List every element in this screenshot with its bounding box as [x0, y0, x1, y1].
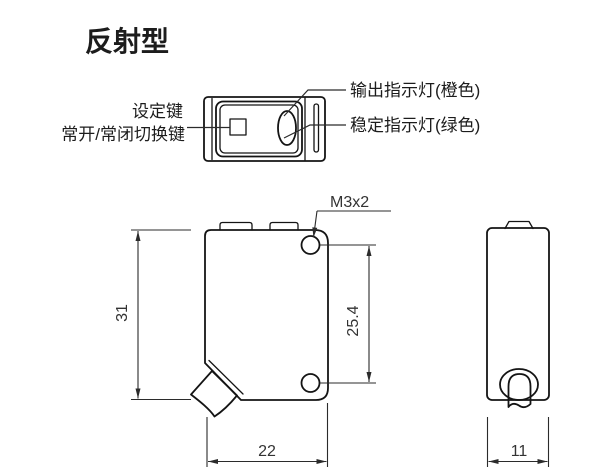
cable-stub: [509, 374, 531, 407]
callout-stability-indicator: 稳定指示灯(绿色): [350, 116, 480, 135]
callout-setting-key: 设定键: [132, 102, 183, 121]
chamfer-inner-line: [209, 361, 243, 395]
dim-depth-value: 11: [511, 443, 528, 460]
stability-indicator-leader-line: [284, 125, 346, 138]
top-view: 输出指示灯(橙色) 稳定指示灯(绿色) 设定键 常开/常闭切换键: [61, 81, 480, 161]
dim-width: 22: [207, 403, 328, 467]
dim-height-value: 31: [114, 304, 131, 322]
callout-no-nc-switch-key: 常开/常闭切换键: [61, 125, 185, 144]
thread-callout-label: M3x2: [330, 194, 369, 211]
sensor-dimension-drawing: 反射型 输出指示灯(橙色) 稳定指示灯(绿色) 设定键 常开/常闭切换键: [0, 0, 600, 470]
dim-width-value: 22: [258, 443, 276, 460]
setting-key-square: [230, 119, 246, 135]
top-tab-right: [270, 223, 298, 231]
callout-output-indicator: 输出指示灯(橙色): [350, 81, 480, 100]
page-title: 反射型: [85, 26, 169, 57]
side-view: 11: [487, 222, 549, 468]
top-tab-left: [220, 223, 252, 231]
dim-pitch-value: 25.4: [345, 305, 362, 336]
top-view-lens-slit: [314, 104, 319, 152]
diagram-page: 反射型 输出指示灯(橙色) 稳定指示灯(绿色) 设定键 常开/常闭切换键: [0, 0, 600, 470]
cable-gland: [191, 371, 237, 417]
dim-depth: 11: [488, 417, 549, 467]
front-view: M3x2 31 25.4 22: [114, 194, 391, 467]
mounting-hole-top: [302, 236, 320, 254]
indicator-window-ellipse: [278, 111, 296, 145]
output-indicator-leader-line: [284, 90, 346, 116]
thread-callout-leader: [314, 211, 318, 238]
mounting-hole-bottom: [302, 374, 320, 392]
dim-height: 31: [114, 230, 191, 400]
